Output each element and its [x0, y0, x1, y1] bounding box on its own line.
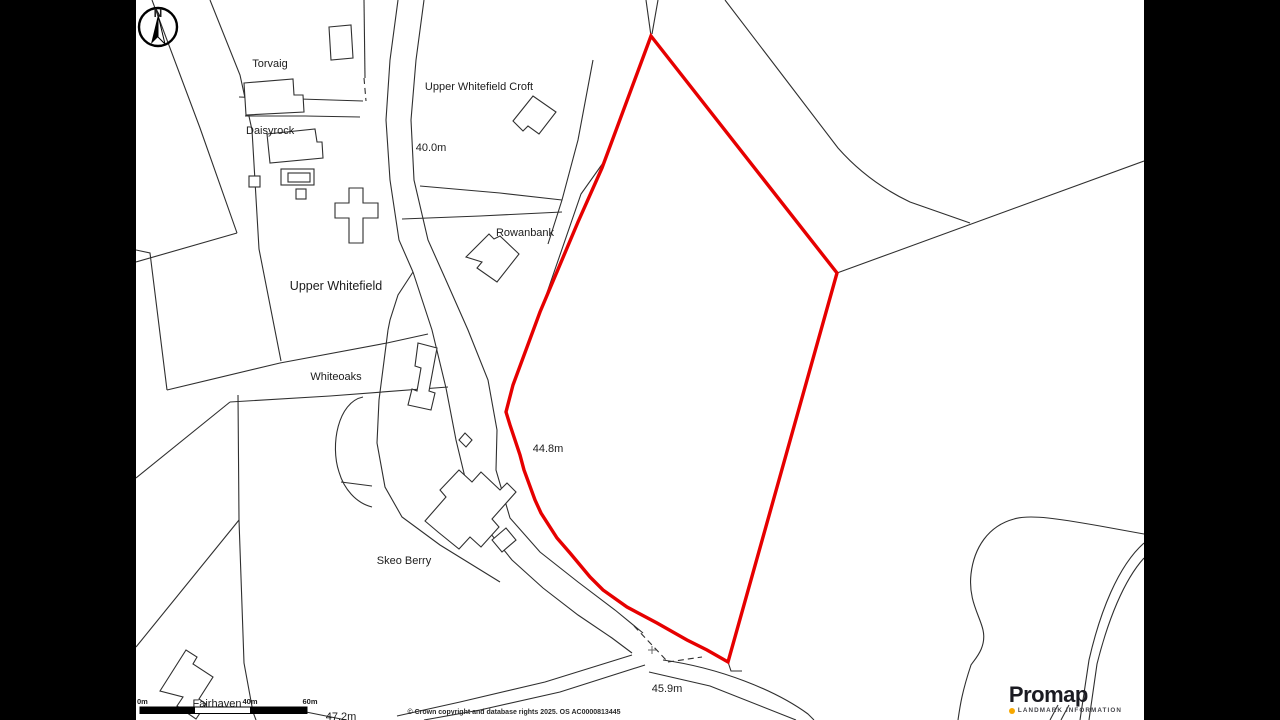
- dashed-path-lines: [364, 78, 702, 662]
- spot-height-459: 45.9m: [652, 683, 683, 695]
- label-whiteoaks: Whiteoaks: [310, 371, 362, 383]
- scale-label-0: 0m: [137, 697, 148, 706]
- spot-height-40: 40.0m: [416, 142, 447, 154]
- label-skeo-berry: Skeo Berry: [377, 555, 432, 567]
- scale-label-60: 60m: [302, 697, 317, 706]
- road-lines: [239, 0, 1144, 720]
- site-boundary-outline: [506, 36, 837, 662]
- spot-height-472: 47.2m: [326, 711, 357, 720]
- place-labels: Torvaig Upper Whitefield Croft Daisyrock…: [193, 58, 555, 710]
- label-upper-whitefield-croft: Upper Whitefield Croft: [425, 81, 533, 93]
- landmark-dot-icon: [1009, 708, 1015, 714]
- letterboxed-stage: N Torvaig Upper Whitefield Croft Daisyro…: [0, 0, 1280, 720]
- label-upper-whitefield: Upper Whitefield: [290, 279, 382, 293]
- junction-marker: [648, 646, 656, 654]
- label-daisyrock: Daisyrock: [246, 125, 295, 137]
- north-arrow: N: [139, 6, 177, 46]
- copyright-note: © Crown copyright and database rights 20…: [407, 708, 620, 716]
- scale-label-40: 40m: [242, 697, 257, 706]
- site-plan-map: N Torvaig Upper Whitefield Croft Daisyro…: [136, 0, 1144, 720]
- promap-wordmark: Promap: [1009, 684, 1122, 706]
- promap-logo: Promap LANDMARK INFORMATION: [1009, 684, 1122, 714]
- map-canvas: N Torvaig Upper Whitefield Croft Daisyro…: [136, 0, 1144, 720]
- label-rowanbank: Rowanbank: [496, 227, 555, 239]
- promap-tagline: LANDMARK INFORMATION: [1018, 708, 1122, 714]
- spot-height-448: 44.8m: [533, 443, 564, 455]
- label-torvaig: Torvaig: [252, 58, 287, 70]
